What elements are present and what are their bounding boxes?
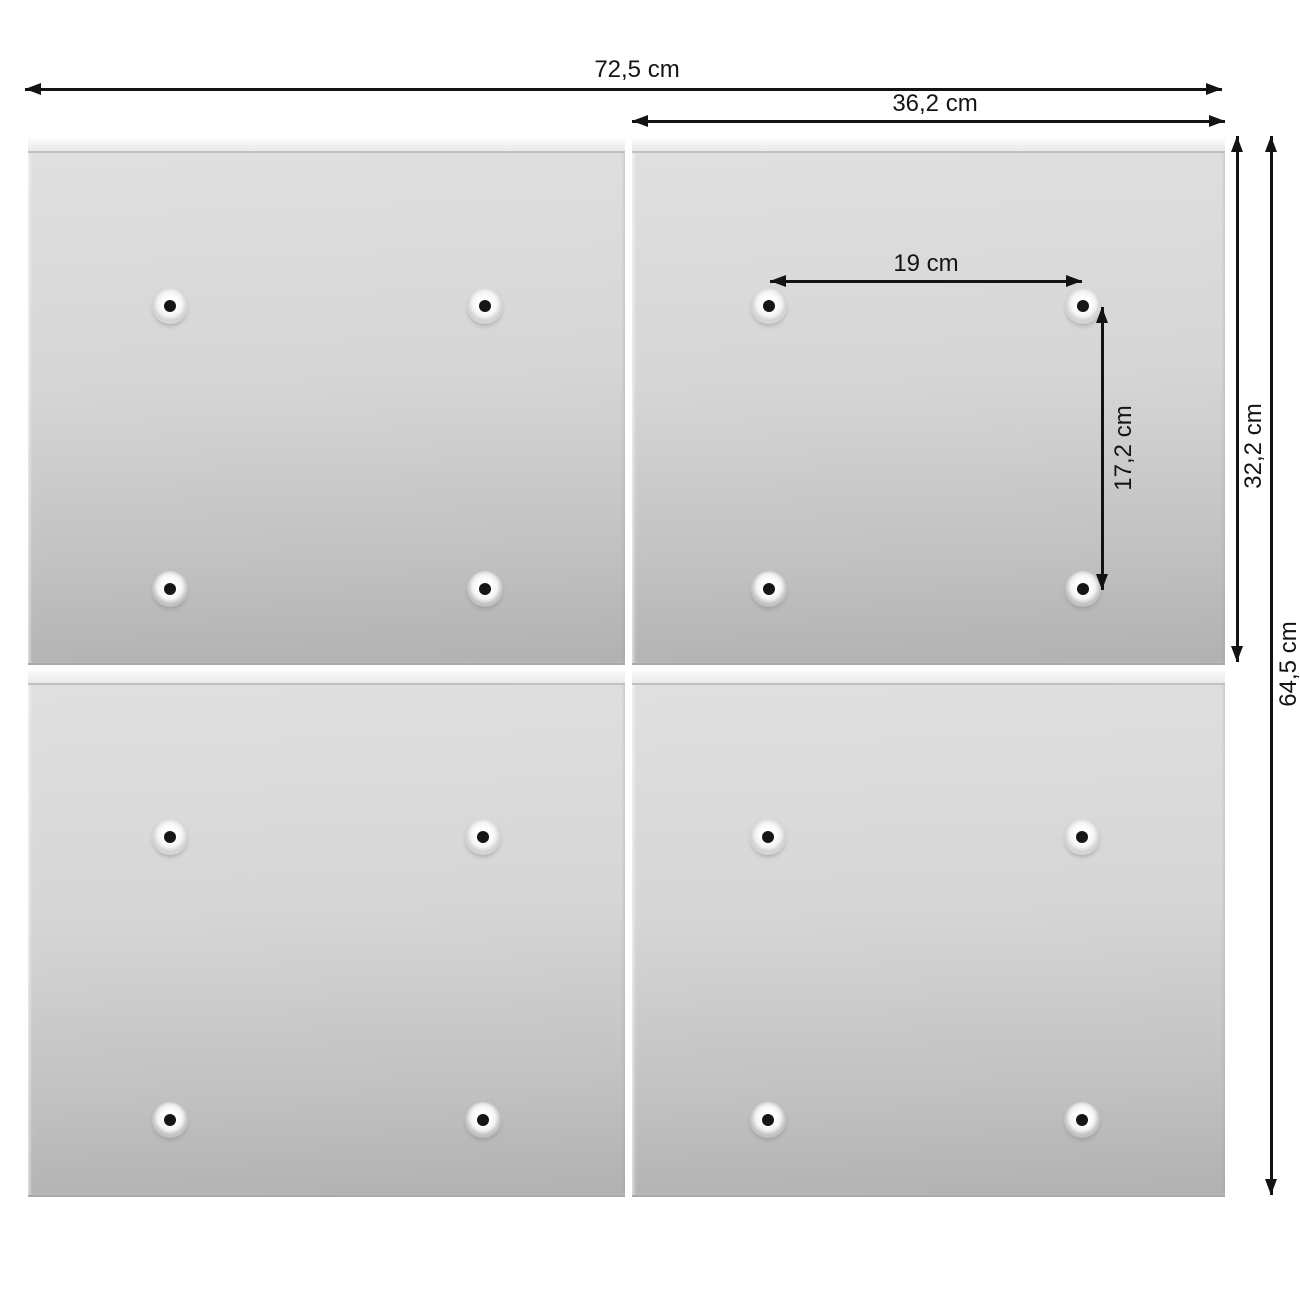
mounting-hole	[465, 819, 501, 855]
mounting-hole	[751, 288, 787, 324]
mounting-hole	[465, 1102, 501, 1138]
hole-dot	[1077, 300, 1089, 312]
dimension-arrow-total-width	[25, 88, 1222, 91]
mounting-hole	[1064, 1102, 1100, 1138]
mounting-hole	[152, 571, 188, 607]
hole-dot	[479, 300, 491, 312]
hole-dot	[164, 831, 176, 843]
dimension-arrow-panel-width	[632, 120, 1225, 123]
dimension-label-total-width: 72,5 cm	[594, 57, 679, 83]
hole-dot	[477, 831, 489, 843]
hole-dot	[164, 1114, 176, 1126]
dimension-diagram: 72,5 cm 36,2 cm 19 cm 17,2 cm 32,2 cm 64…	[0, 0, 1300, 1300]
dimension-label-panel-height: 32,2 cm	[1241, 403, 1267, 488]
mounting-hole	[467, 288, 503, 324]
panel-top-edge	[28, 137, 625, 153]
dimension-arrow-hole-spacing-horizontal	[770, 280, 1082, 283]
mounting-hole	[750, 1102, 786, 1138]
hole-dot	[1076, 831, 1088, 843]
hole-dot	[762, 831, 774, 843]
panel-top-right	[632, 137, 1225, 665]
dimension-arrow-hole-spacing-vertical	[1101, 307, 1104, 590]
panel-top-edge	[632, 137, 1225, 153]
panel-bottom-right	[632, 669, 1225, 1197]
mounting-hole	[152, 288, 188, 324]
hole-dot	[479, 583, 491, 595]
mounting-hole	[751, 571, 787, 607]
mounting-hole	[152, 1102, 188, 1138]
dimension-arrow-panel-height	[1236, 136, 1239, 662]
panel-top-edge	[632, 669, 1225, 685]
hole-dot	[762, 1114, 774, 1126]
mounting-hole	[750, 819, 786, 855]
hole-dot	[763, 300, 775, 312]
hole-dot	[1077, 583, 1089, 595]
mounting-hole	[1064, 819, 1100, 855]
hole-dot	[164, 300, 176, 312]
dimension-label-total-height: 64,5 cm	[1276, 621, 1300, 706]
panel-bottom-left	[28, 669, 625, 1197]
dimension-label-hole-spacing-horizontal: 19 cm	[893, 251, 958, 277]
hole-dot	[1076, 1114, 1088, 1126]
hole-dot	[477, 1114, 489, 1126]
mounting-hole	[152, 819, 188, 855]
hole-dot	[164, 583, 176, 595]
dimension-arrow-total-height	[1270, 136, 1273, 1195]
mounting-hole	[467, 571, 503, 607]
dimension-label-panel-width: 36,2 cm	[892, 91, 977, 117]
panel-top-edge	[28, 669, 625, 685]
hole-dot	[763, 583, 775, 595]
panel-top-left	[28, 137, 625, 665]
dimension-label-hole-spacing-vertical: 17,2 cm	[1111, 405, 1137, 490]
